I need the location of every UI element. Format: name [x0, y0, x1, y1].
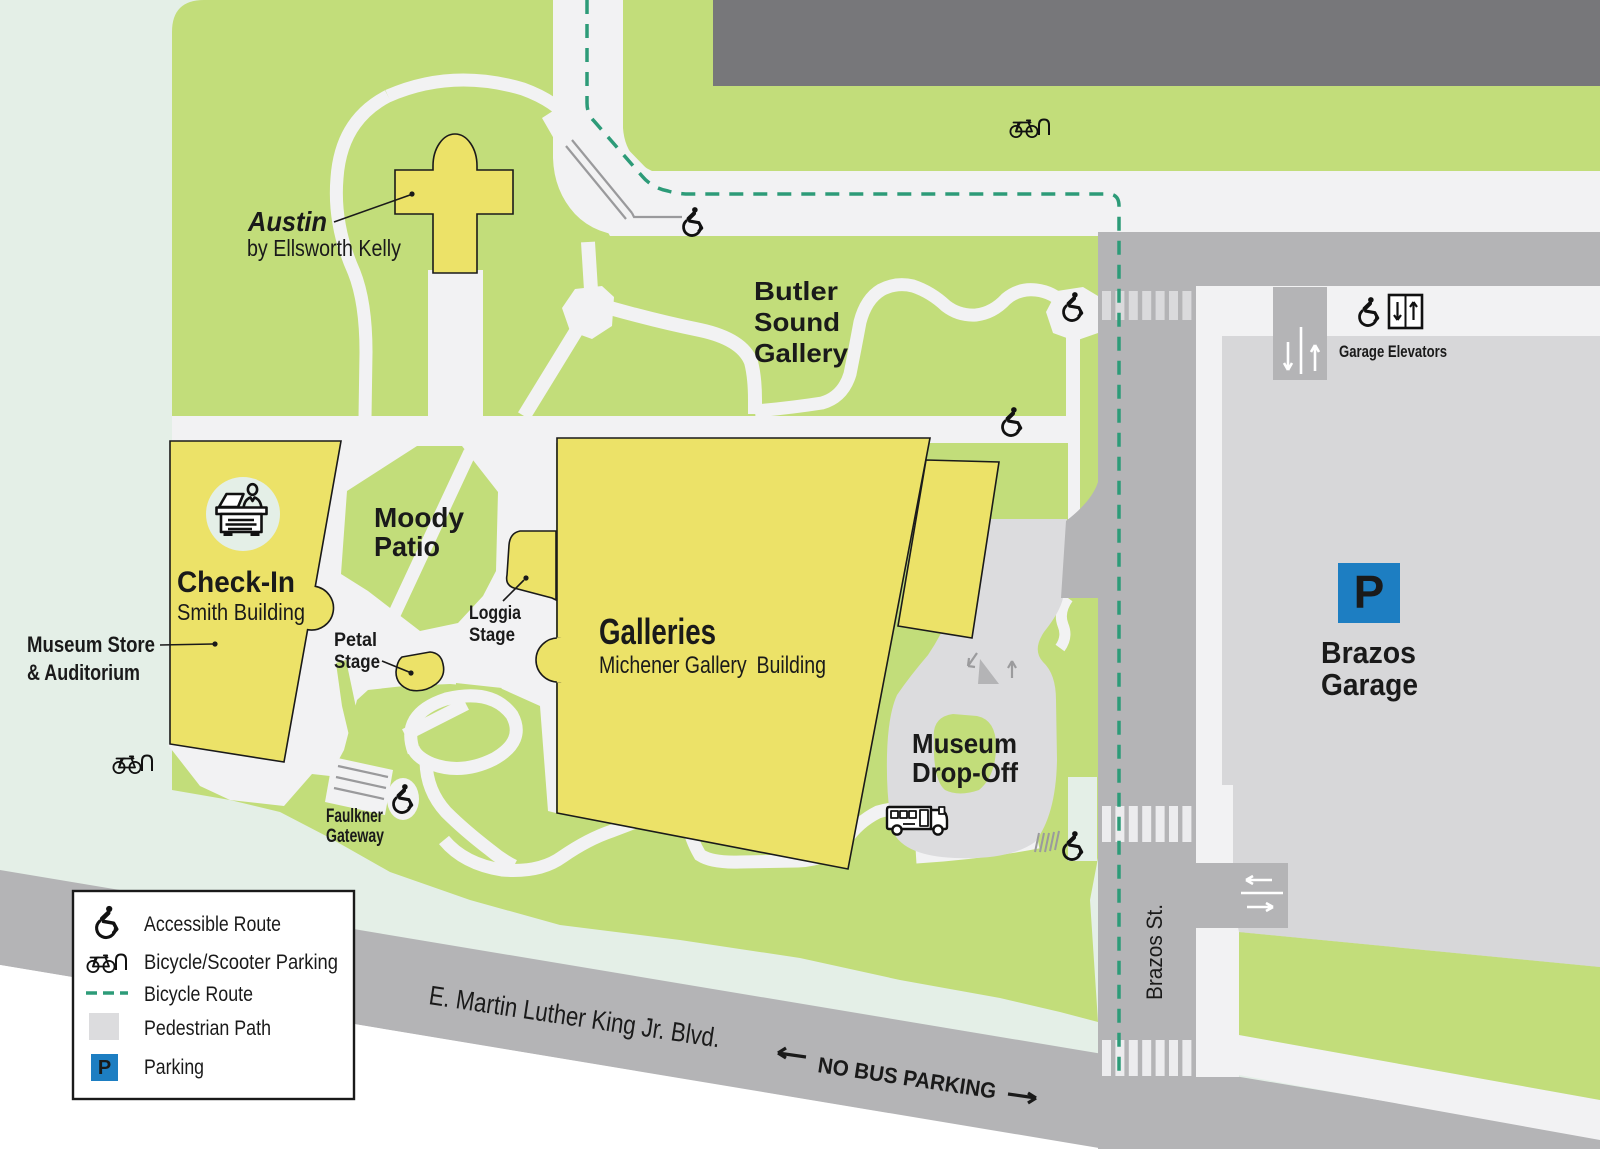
svg-text:Brazos St.: Brazos St.	[1142, 904, 1167, 1000]
svg-text:Gateway: Gateway	[326, 826, 384, 847]
svg-text:Pedestrian Path: Pedestrian Path	[144, 1017, 271, 1040]
svg-text:Bicycle Route: Bicycle Route	[144, 983, 253, 1006]
svg-text:Sound: Sound	[754, 307, 840, 337]
svg-text:Smith Building: Smith Building	[177, 599, 305, 625]
svg-text:Patio: Patio	[374, 531, 440, 562]
svg-text:P: P	[1354, 566, 1385, 618]
svg-text:& Auditorium: & Auditorium	[27, 660, 140, 685]
svg-text:Gallery: Gallery	[754, 338, 849, 368]
svg-text:Stage: Stage	[334, 652, 380, 673]
svg-text:Drop-Off: Drop-Off	[912, 757, 1019, 788]
svg-text:Galleries: Galleries	[599, 611, 716, 652]
svg-text:Butler: Butler	[754, 276, 838, 306]
svg-text:Check-In: Check-In	[177, 566, 295, 599]
svg-text:Faulkner: Faulkner	[326, 806, 383, 827]
svg-text:Austin: Austin	[247, 206, 327, 237]
svg-text:by Ellsworth Kelly: by Ellsworth Kelly	[247, 235, 401, 261]
svg-text:Michener Gallery Building: Michener Gallery Building	[599, 652, 826, 679]
svg-text:Accessible Route: Accessible Route	[144, 913, 281, 936]
svg-text:P: P	[98, 1057, 111, 1079]
svg-text:Bicycle/Scooter Parking: Bicycle/Scooter Parking	[144, 951, 338, 974]
svg-text:Museum Store: Museum Store	[27, 632, 155, 657]
svg-text:Moody: Moody	[374, 502, 464, 533]
svg-text:Petal: Petal	[334, 630, 377, 651]
svg-text:Parking: Parking	[144, 1056, 204, 1079]
svg-text:Loggia: Loggia	[469, 603, 521, 624]
svg-text:Museum: Museum	[912, 728, 1017, 759]
svg-text:Garage: Garage	[1321, 667, 1418, 702]
svg-text:Brazos: Brazos	[1321, 635, 1416, 670]
svg-text:Stage: Stage	[469, 625, 515, 646]
svg-text:Garage Elevators: Garage Elevators	[1339, 342, 1447, 361]
